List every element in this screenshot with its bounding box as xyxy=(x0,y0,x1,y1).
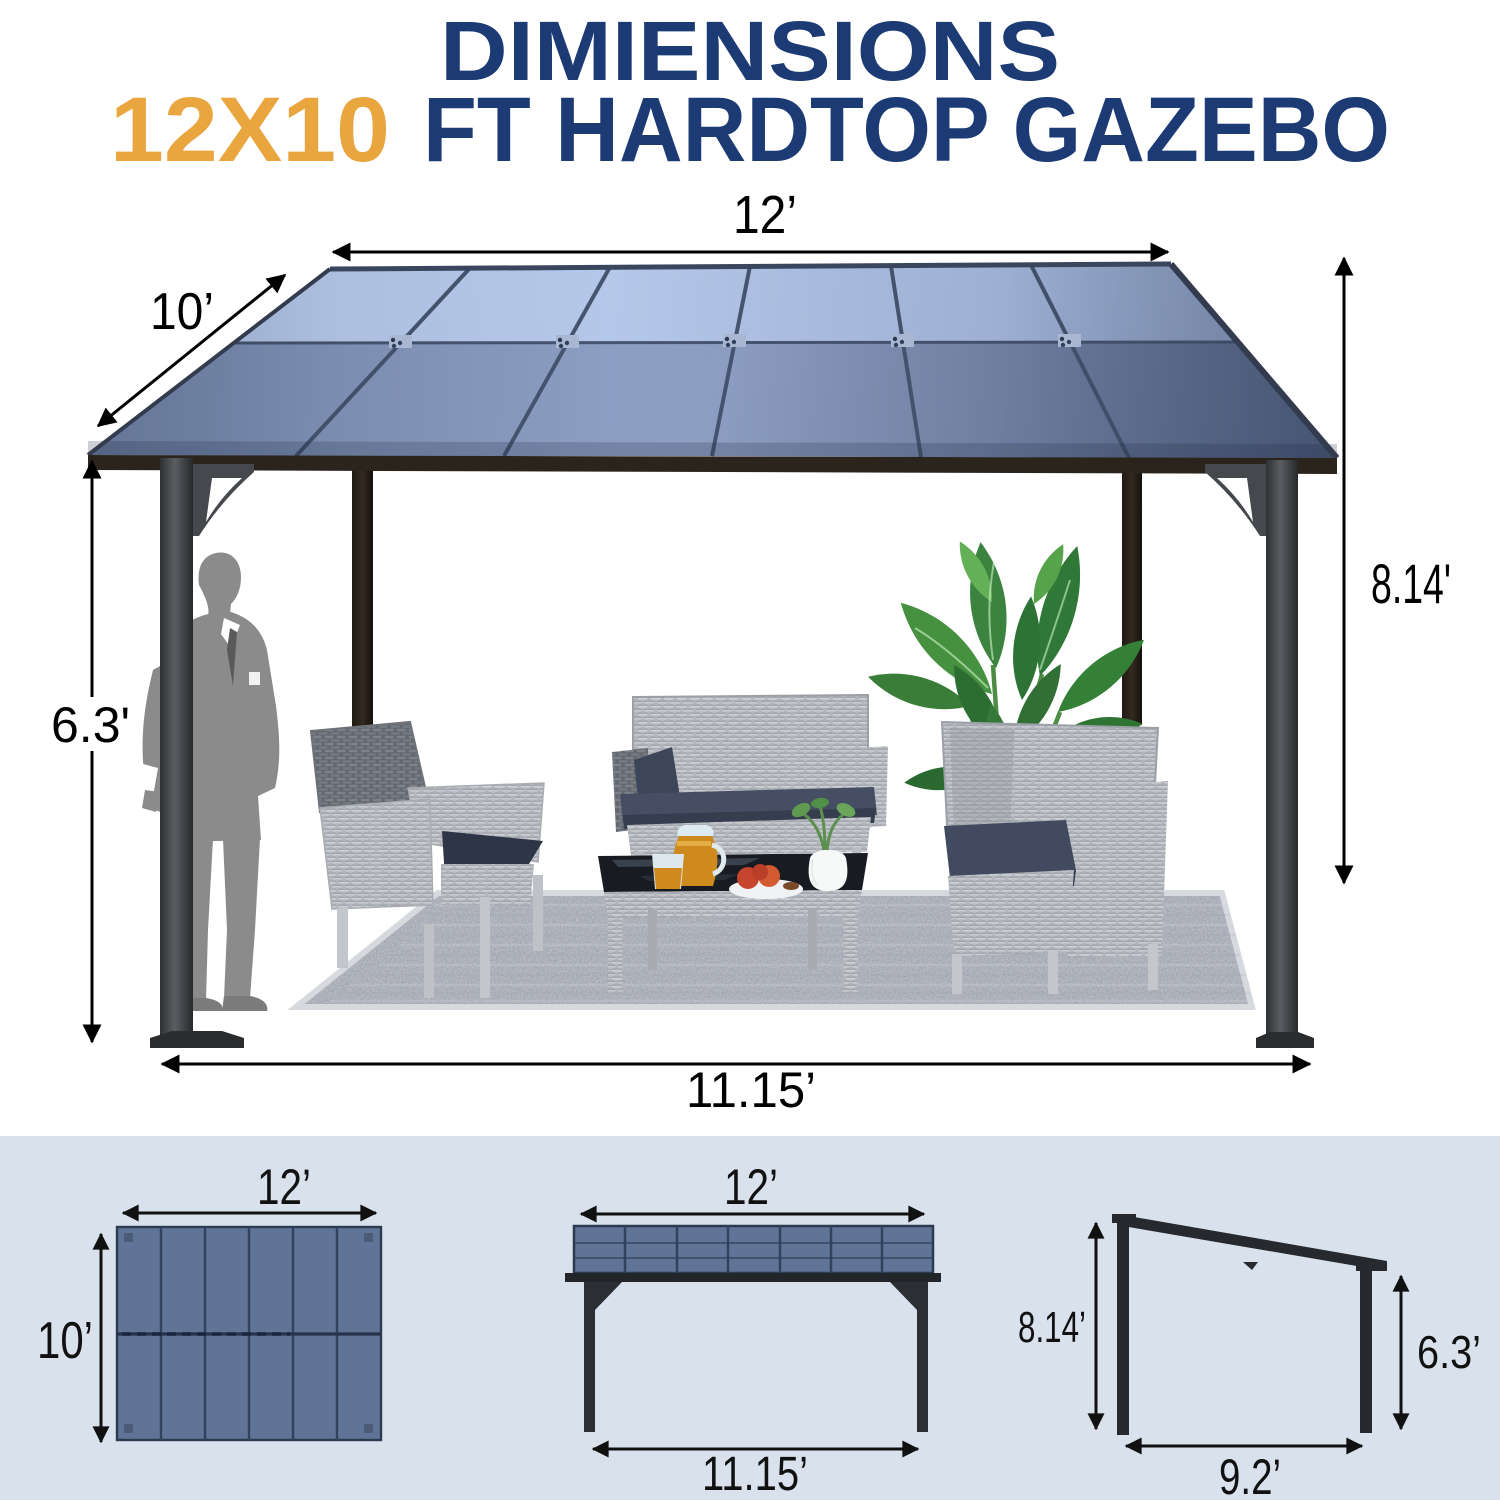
svg-text:12X10: 12X10 xyxy=(110,79,390,181)
svg-text:6.3': 6.3' xyxy=(51,697,130,753)
svg-text:12’: 12’ xyxy=(724,1159,778,1215)
svg-text:12’: 12’ xyxy=(733,185,797,245)
svg-text:12’: 12’ xyxy=(257,1159,311,1215)
svg-text:11.15’: 11.15’ xyxy=(702,1448,808,1500)
svg-text:10’: 10’ xyxy=(37,1312,93,1370)
svg-text:9.2’: 9.2’ xyxy=(1219,1449,1281,1500)
svg-text:10’: 10’ xyxy=(150,283,214,341)
svg-text:6.3’: 6.3’ xyxy=(1417,1326,1481,1378)
svg-text:8.14’: 8.14’ xyxy=(1018,1303,1086,1352)
svg-text:11.15’: 11.15’ xyxy=(686,1062,816,1118)
svg-text:FT HARDTOP GAZEBO: FT HARDTOP GAZEBO xyxy=(423,79,1390,181)
svg-text:8.14': 8.14' xyxy=(1371,552,1451,615)
